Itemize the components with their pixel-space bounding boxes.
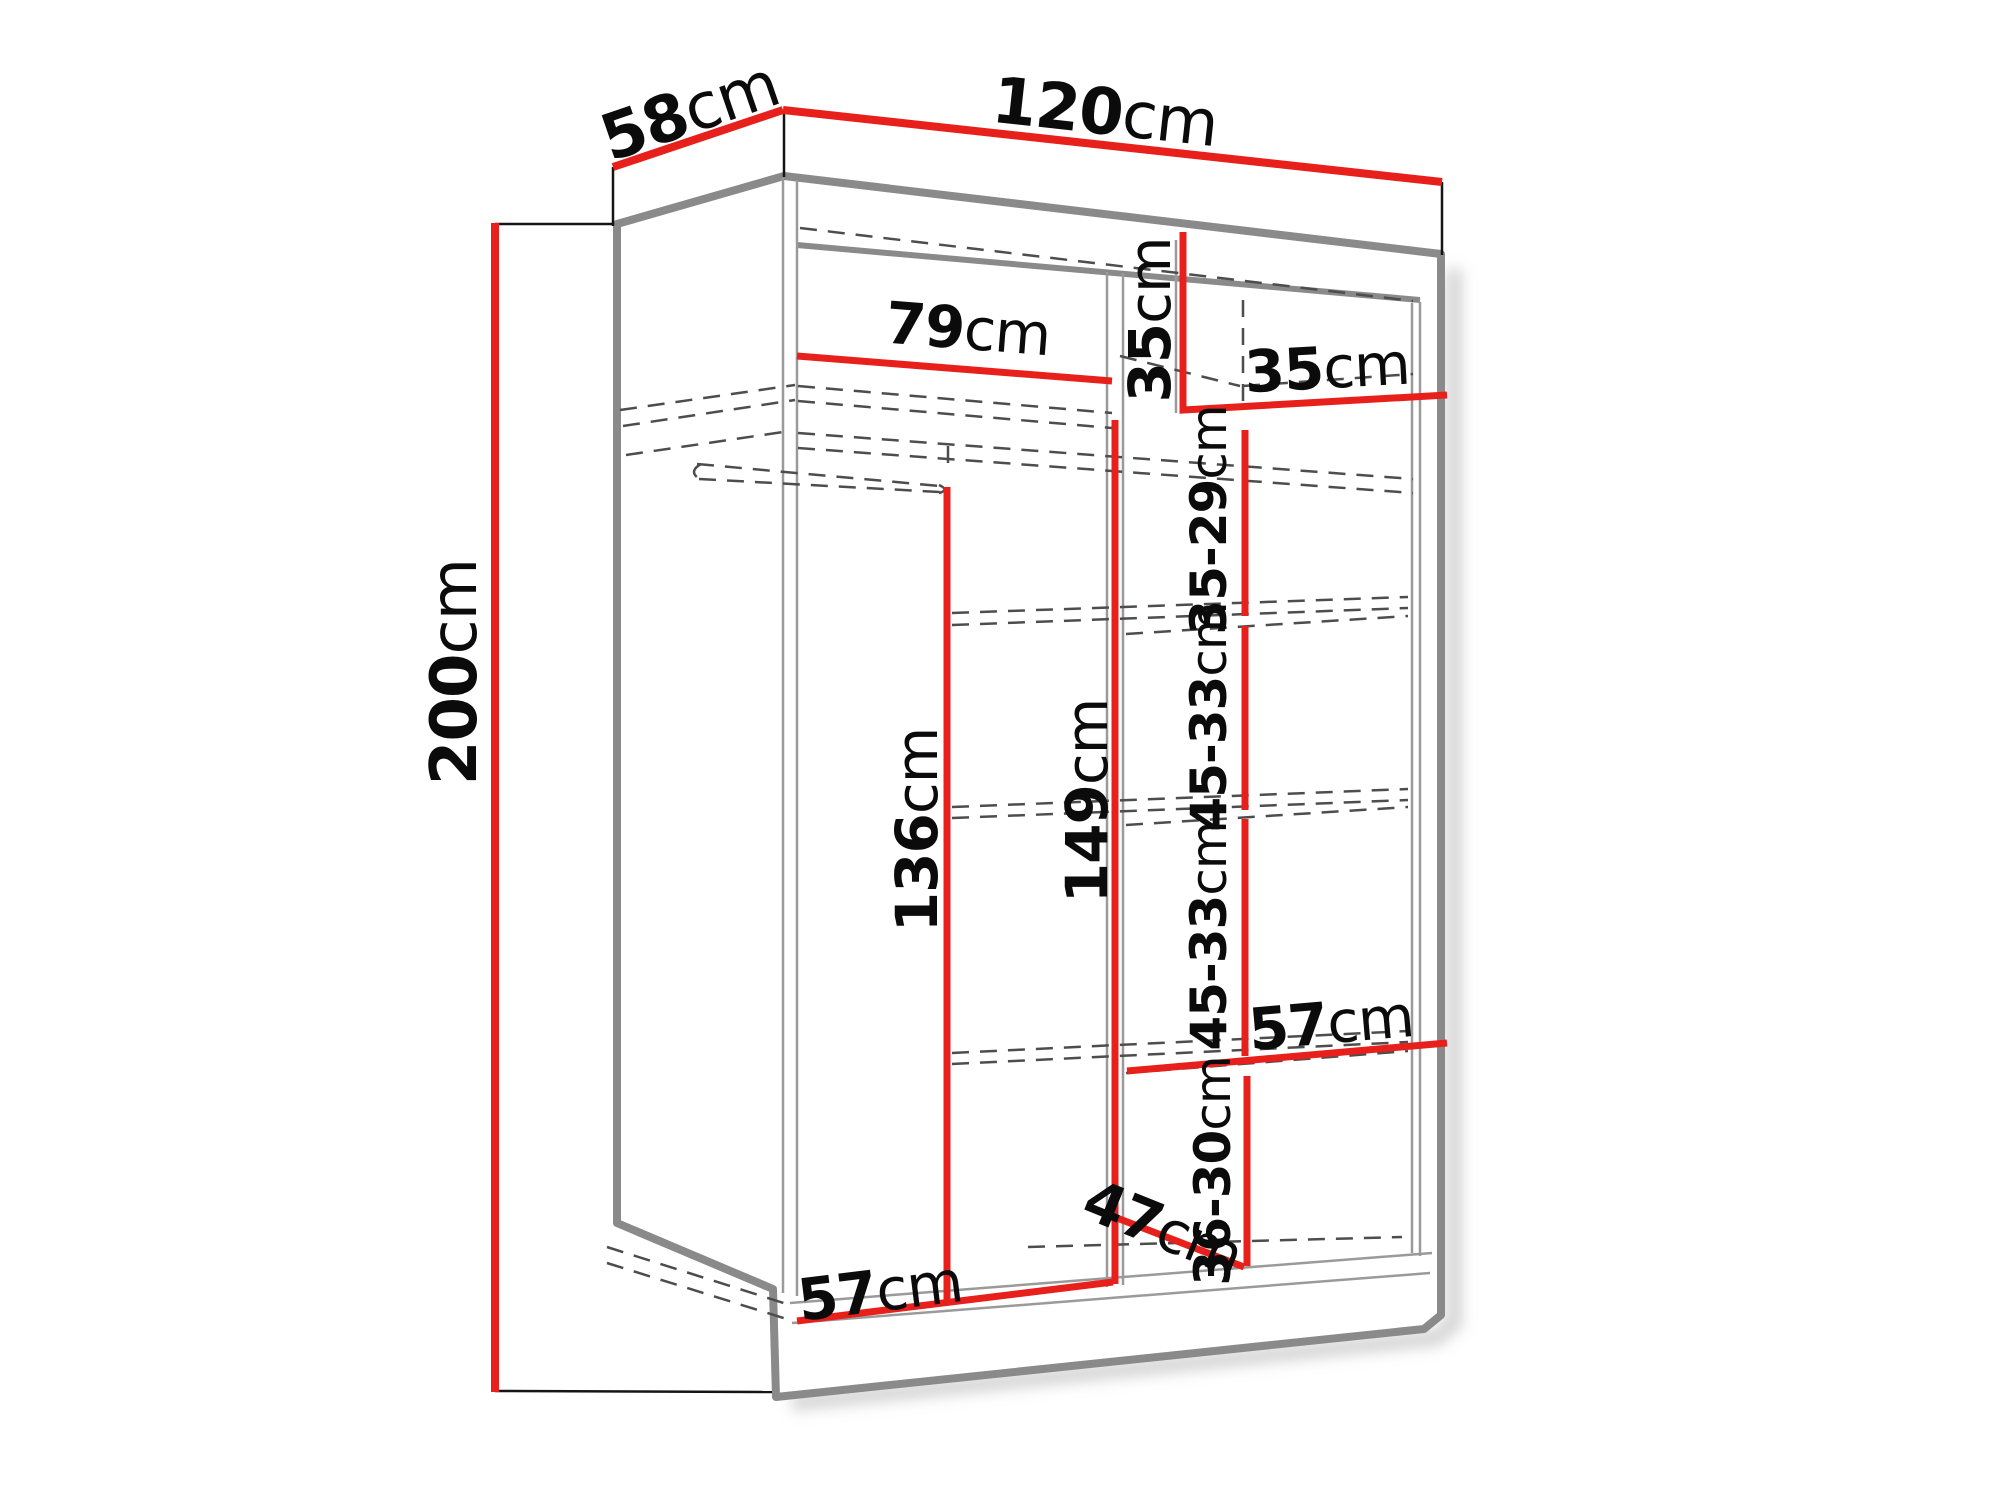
dim-unit: cm	[1324, 982, 1416, 1057]
dim-value: 35	[1116, 324, 1184, 403]
dim-label-width: 120cm	[989, 64, 1222, 162]
dim-value: 120	[989, 64, 1127, 152]
dim-label-shelf-space-1: 35-29cm	[1180, 405, 1238, 634]
dim-label-top-right-height: 35cm	[1116, 237, 1184, 402]
dim-label-top-right-width: 35cm	[1243, 330, 1411, 407]
dim-unit: cm	[883, 728, 951, 814]
wardrobe-dimension-diagram: 58cm 120cm 200cm 79cm 35cm 35cm 35-29cm …	[0, 0, 2000, 1500]
dim-label-right-column-height: 149cm	[1053, 699, 1121, 903]
diagram-canvas: 58cm 120cm 200cm 79cm 35cm 35cm 35-29cm …	[0, 0, 2000, 1500]
dim-value: 35	[1243, 334, 1325, 406]
dim-unit: cm	[1184, 1056, 1242, 1130]
dim-unit: cm	[1180, 821, 1238, 895]
dim-unit: cm	[1053, 699, 1121, 785]
dim-unit: cm	[1180, 602, 1238, 676]
dim-label-middle-shelf-width: 57cm	[1246, 982, 1416, 1064]
dim-unit: cm	[1118, 78, 1221, 162]
dim-value: 79	[883, 289, 967, 363]
dim-value: 200	[418, 654, 492, 785]
dim-label-hanging-height: 136cm	[883, 728, 951, 932]
dim-value: 45-33	[1180, 896, 1238, 1051]
dim-label-shelf-space-3: 45-33cm	[1180, 821, 1238, 1050]
dim-value: 136	[883, 814, 951, 932]
dim-unit: cm	[1321, 330, 1411, 402]
dim-value: 57	[1246, 989, 1330, 1064]
extension-line	[495, 1391, 772, 1392]
dim-unit: cm	[872, 1247, 966, 1325]
dim-unit: cm	[1180, 405, 1238, 479]
dim-value: 149	[1053, 785, 1121, 903]
dim-value: 57	[794, 1258, 880, 1335]
dim-unit: cm	[418, 559, 492, 655]
dim-label-shelf-space-2: 45-33cm	[1180, 602, 1238, 831]
dim-unit: cm	[962, 295, 1053, 370]
dim-unit: cm	[1116, 237, 1184, 323]
dim-value: 45-33	[1180, 677, 1238, 832]
dim-label-depth: 58cm	[592, 47, 789, 176]
dim-label-height: 200cm	[418, 559, 492, 785]
dim-label-top-left-width: 79cm	[883, 289, 1053, 370]
